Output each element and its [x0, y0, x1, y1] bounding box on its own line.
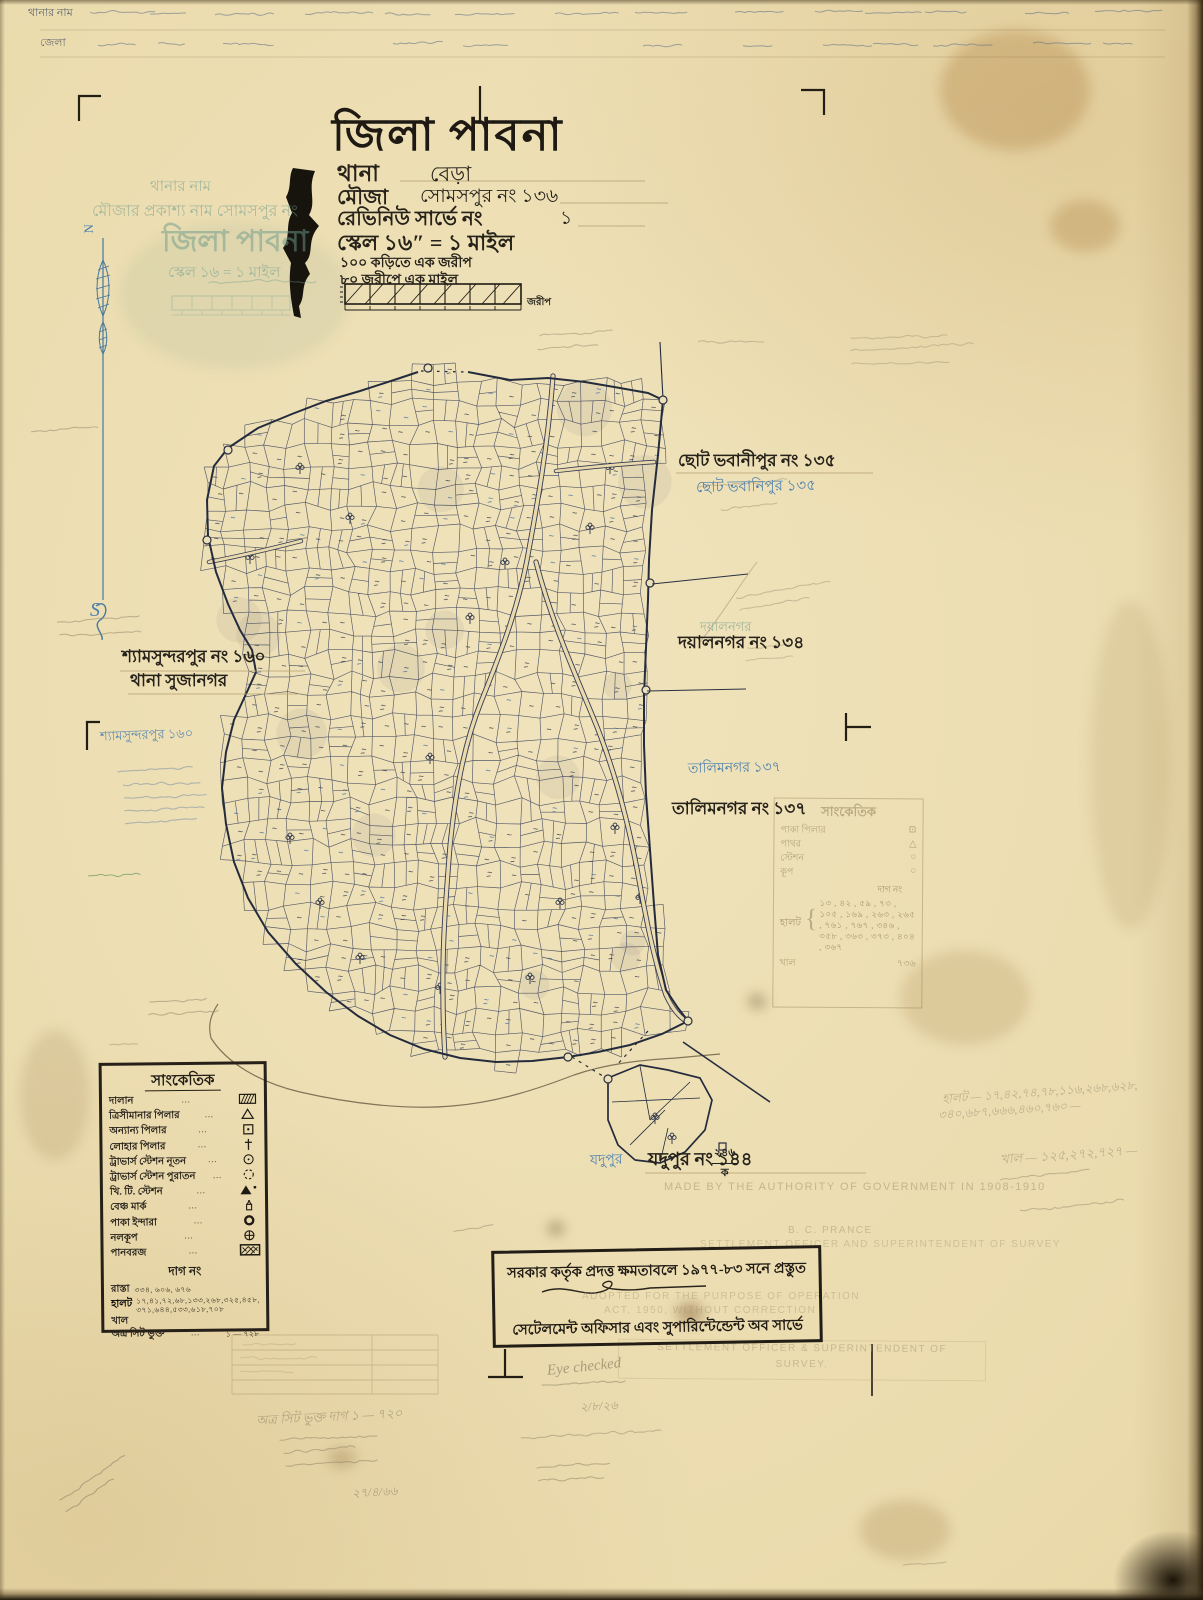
scribble-line [305, 12, 373, 15]
tree-symbol [668, 1133, 676, 1144]
scribble-line [149, 998, 207, 1004]
legend-row-traverse-old: ট্রাভার্স স্টেশন পুরাতন ··· [110, 1169, 258, 1186]
handwriting-scribble [903, 1562, 947, 1566]
detached-plot-number: ২৪৬ [712, 1144, 737, 1164]
tree-crown [298, 463, 302, 467]
scribble-line [823, 44, 872, 46]
scribble-line [521, 1429, 662, 1440]
scribble-line [743, 46, 772, 47]
stamp-line1: সরকার কর্তৃক প্রদত্ত ক্ষমতাবলে ১৯৭৭-৮৩ স… [494, 1257, 818, 1287]
cadastral-map-sheet: থানার নাম জেলা থানার নাম মৌজার প্রকাশ্য … [0, 0, 1203, 1600]
legend-dots: ··· [146, 1202, 239, 1213]
scribble-line [123, 781, 200, 787]
junction-circle [224, 446, 232, 454]
crop-mark-bottom [488, 1349, 523, 1377]
handwriting-scribble [850, 333, 974, 366]
scribble-line [453, 1225, 493, 1232]
scribble-line [555, 12, 619, 14]
tree-symbol [556, 898, 564, 909]
crop-mark-top-left [79, 96, 101, 121]
junction-circle [203, 536, 211, 544]
scribble-line [815, 10, 863, 12]
scribble-line [850, 342, 973, 350]
scribble-line [1020, 1199, 1125, 1212]
scribble-line [1025, 12, 1069, 14]
legend-label: পানবরজ [111, 1245, 147, 1262]
ghost-thana-line: থানার নাম [150, 180, 211, 196]
stamp-prance: B. C. PRANCE [788, 1226, 873, 1237]
junction-circle [684, 1017, 692, 1025]
revenue-survey-value: ১ [560, 209, 572, 229]
table-entry-scribble [635, 12, 687, 47]
scribble-line [240, 1371, 293, 1373]
compass-north-label: N [82, 224, 96, 233]
junction-circle [424, 364, 432, 372]
scribble-line [240, 1357, 317, 1360]
handwriting-scribble [58, 1455, 133, 1513]
tree-crown [318, 898, 322, 902]
legend-values: ১৭,৪১,৭২,৬৮,১৩৩,২৬৮,৩২৫,৪৫৮,৩৭১,৬৪৪,৫৩৩,… [136, 1295, 260, 1315]
ghost-legend-row: পাথর△ [780, 838, 916, 853]
scribble-line [223, 43, 273, 45]
top-table-cell: থানার নাম [28, 8, 73, 20]
scribble-line [215, 13, 274, 15]
legend-dots: ··· [195, 1172, 238, 1182]
label-thana-sujanagar: থানা সুজানগর [130, 672, 227, 690]
scalebar-ticks [345, 304, 521, 310]
scribble-line [635, 12, 687, 13]
tree-crown [613, 823, 617, 827]
ghost-legend-label: স্টেশন [780, 852, 804, 866]
legend-row-tri-pillar: ত্রিসীমানার পিলার ··· [109, 1108, 257, 1125]
junction-circle [604, 1075, 612, 1083]
stamp-made-by: MADE BY THE AUTHORITY OF GOVERNMENT IN 1… [664, 1182, 1046, 1194]
scalebar-left-marks [340, 287, 343, 302]
label-chhoto-bhabanipur: ছোট ভবানীপুর নং ১৩৫ [678, 452, 836, 470]
scribble-line [98, 43, 136, 46]
handwriting-scribble [736, 580, 833, 611]
crop-mark-top-right [801, 90, 824, 115]
ghost-legend-value: ৭৩৬ [897, 958, 916, 972]
scribble-line [933, 44, 993, 46]
ghost-legend-values: ১৩ , ৪২ , ৫৯ , ৭৩ , ১০৫ , ১৬৯ , ২৬৩ , ২৬… [819, 898, 916, 954]
legend-dots: ··· [166, 1142, 239, 1153]
scribble-line [124, 794, 207, 799]
tree-crown [358, 953, 362, 957]
legend-values: ৩৩৪, ৬০৬, ৬৭৬ [134, 1285, 191, 1295]
legend-dots: ··· [138, 1233, 240, 1244]
top-table-strip [40, 10, 1165, 57]
thana-value: বেড়া [430, 163, 471, 185]
ghost-legend-khal: খাল ৭৩৬ [780, 957, 916, 972]
mouza-value: সোমসপুর নং ১৩৬ [420, 187, 558, 207]
boundary-extension [660, 342, 663, 399]
legend-label: হালট [111, 1297, 132, 1314]
scribble-line [125, 818, 197, 824]
legend-dots: ··· [157, 1218, 239, 1229]
scribble-line [158, 43, 185, 45]
legend-dag-header: দাগ নং [111, 1262, 259, 1284]
crop-mark-right [846, 713, 871, 741]
handwriting-scribble [542, 1379, 626, 1387]
label-chhoto-bhabanipur-hand: ছোট ভবানিপুর ১৩৫ [696, 479, 816, 497]
label-talimnagar-hand: তালিমনগর ১৩৭ [688, 761, 781, 777]
stamp-settlement2-line2: SURVEY. [775, 1359, 828, 1370]
handwriting-scribble [536, 328, 614, 350]
legend-dots: ··· [186, 1157, 239, 1168]
scribble-line [851, 334, 948, 341]
tree-symbol [611, 823, 619, 834]
ghost-legend-row: পাকা পিলার⊡ [780, 824, 916, 839]
handwriting-scribble [147, 997, 218, 1017]
scribble-line [148, 1009, 218, 1017]
legend-row-benchmark: বেঞ্চ মার্ক ··· [110, 1200, 258, 1217]
legend-row-well: পাকা ইন্দারা ··· [110, 1215, 258, 1232]
legend-row-gt-station: খি. টি. স্টেশন ··· [110, 1184, 258, 1201]
scribble-line [865, 12, 921, 14]
scribble-line [455, 13, 515, 15]
north-arrow [96, 238, 110, 640]
junction-circle [646, 579, 654, 587]
handwriting-scribble [536, 1461, 611, 1483]
tree-crown [428, 753, 432, 757]
tree-crown [588, 523, 592, 527]
scribble-line [279, 1434, 377, 1442]
ghost-legend-label: কূপ [780, 866, 793, 880]
ghost-legend-label: পাথর [780, 838, 801, 852]
tree-symbol [426, 753, 434, 764]
table-entry-scribble [815, 10, 872, 46]
tree-crown [348, 513, 352, 517]
ghost-scale-line: স্কেল ১৬ = ১ মাইল [168, 266, 280, 282]
scribble-line [1000, 1169, 1090, 1180]
circle-icon: ○ [910, 866, 916, 880]
ghost-legend-halot: হালট { ১৩ , ৪২ , ৫৯ , ৭৩ , ১০৫ , ১৬৯ , ২… [780, 898, 916, 954]
scribble-line [721, 501, 778, 511]
triangle-icon: △ [909, 838, 916, 852]
scribble-line [735, 11, 784, 12]
scribble-line [537, 343, 598, 350]
scribble-line [31, 426, 98, 432]
scribble-line [88, 873, 140, 878]
table-entry-scribble [925, 11, 993, 46]
leader-line [652, 574, 748, 584]
legend-dots: ··· [164, 1329, 225, 1340]
scribble-line [851, 360, 949, 366]
table-rule [40, 30, 1165, 57]
ghost-legend-row: স্টেশন○ [780, 852, 916, 867]
road-fill [209, 541, 301, 562]
handwriting-scribble [698, 341, 764, 343]
top-table-cell: জেলা [40, 38, 66, 50]
ghost-legend-dag-header: দাগ নং [780, 882, 902, 898]
legend-dag-row-halot: হালট ১৭,৪১,৭২,৬৮,১৩৩,২৬৮,৩২৫,৪৫৮,৩৭১,৬৪৪… [111, 1295, 259, 1315]
tree-symbol [466, 613, 474, 624]
label-jadupur-hand: যদুপুর [590, 1153, 623, 1169]
scribble-line [536, 1461, 610, 1469]
scribble-line [393, 41, 443, 44]
handwriting-scribble [1020, 1199, 1125, 1212]
hamlet-patch [604, 672, 632, 700]
scribble-line [90, 11, 155, 14]
label-shyamsundarpur: শ্যামসুন্দরপুর নং ১৬০ [122, 648, 266, 666]
scale-sub-line1: ১০০ কড়িতে এক জরীপ [340, 257, 472, 272]
scale-line: স্কেল ১৬″ = ১ মাইল [337, 231, 514, 254]
handwriting-scribble [721, 501, 778, 511]
scribble-line [739, 597, 809, 611]
ghost-legend-row: কূপ○ [780, 866, 916, 881]
table-entry-scribble [305, 12, 373, 15]
scribble-line [109, 1044, 138, 1045]
thana-label: থানা [337, 162, 379, 186]
scribble-line [59, 1455, 125, 1502]
hamlet-patch [520, 970, 550, 1000]
handwriting-scribble [88, 873, 140, 878]
detached-plot-label: ২৪৬ ক [712, 1144, 737, 1183]
handwriting-scribble [521, 1429, 662, 1440]
note-sheet-date: ২৭/৪/৬৬ [352, 1485, 398, 1500]
scribble-line [124, 806, 204, 812]
district-title: জিলা পাবনা [332, 112, 564, 159]
table-entry-scribble [555, 12, 619, 14]
scribble-line [538, 1475, 604, 1482]
scale-sub-line2: ৮০ জরীপে এক মাইল [340, 274, 458, 289]
legend-row-tubewell: নলকূপ ··· [110, 1230, 258, 1247]
table-entry-scribble [1025, 12, 1091, 44]
handwriting-scribble [240, 1343, 317, 1372]
compass-south-label: S [90, 600, 100, 621]
legend-dots: ··· [133, 1096, 238, 1107]
ghost-legend-box: সাংকেতিক পাকা পিলার⊡ পাথর△ স্টেশন○ কূপ○ … [772, 797, 923, 1008]
label-talimnagar: তালিমনগর নং ১৩৭ [672, 800, 806, 818]
legend-dots: ··· [167, 1126, 239, 1137]
junction-circle [564, 1053, 572, 1061]
ghost-district-title: জিলা পাবনা [162, 226, 308, 258]
scribble-line [736, 580, 831, 599]
scribble-line [745, 655, 792, 662]
legend-dots: ··· [146, 1248, 239, 1259]
stamp-settlement2: SETTLEMENT OFFICER & SUPERINTENDENT OF S… [618, 1339, 986, 1382]
pan-hatch-icon [239, 1244, 258, 1262]
scribble-line [925, 11, 966, 13]
square-dot-icon: ⊡ [908, 824, 916, 838]
certification-stamp-box: সরকার কর্তৃক প্রদত্ত ক্ষমতাবলে ১৯৭৭-৮৩ স… [491, 1245, 823, 1348]
scribble-line [542, 1379, 626, 1387]
scribble-line [65, 1478, 114, 1513]
scribble-line [283, 1446, 355, 1454]
label-dayalnagar-stamp: দয়ালনগর [700, 620, 751, 634]
revenue-survey-label: রেভিনিউ সার্ভে নং [337, 209, 482, 230]
legend-values-line2: ৩৭১,৬৪৪,৫৩৩,৬১৮,৭০৮ [136, 1305, 224, 1315]
handwriting-scribble [453, 1225, 493, 1232]
scalebar-unit-label: জরীপ [527, 298, 551, 309]
scribble-line [903, 1562, 947, 1566]
scribble-line [463, 45, 508, 47]
legend-values-line1: ১৭,৪১,৭২,৬৮,১৩৩,২৬৮,৩২৫,৪৫৮, [136, 1295, 260, 1305]
scribble-line [117, 766, 192, 772]
scribble-line [1095, 10, 1162, 12]
legend-values: ১ — ৭২৮ [226, 1329, 260, 1339]
legend-label: অত্র সিট ভুক্ত [111, 1327, 164, 1345]
legend-dots: ··· [163, 1187, 239, 1198]
scribble-line [242, 1343, 296, 1345]
label-dayalnagar: দয়ালনগর নং ১৩৪ [678, 634, 804, 652]
junction-circle [659, 396, 667, 404]
table-entry-scribble [385, 13, 443, 44]
scribble-line [1033, 42, 1091, 44]
ghost-legend-label: খাল [780, 957, 796, 971]
legend-box: সাংকেতিক দালান ··· ত্রিসীমানার পিলার ···… [99, 1061, 270, 1333]
ghost-legend-label: পাকা পিলার [780, 824, 825, 838]
legend-dag-row-sheet: অত্র সিট ভুক্ত ··· ১ — ৭২৮ [111, 1327, 259, 1343]
ghost-grid-lines [232, 1335, 438, 1394]
leader-line [647, 689, 746, 691]
mouza-label: মৌজা [337, 186, 388, 208]
handwriting-scribble [279, 1434, 378, 1467]
crop-mark-left [87, 722, 100, 750]
scribble-line [698, 341, 764, 343]
tree-crown [468, 613, 472, 617]
scribble-line [385, 13, 431, 15]
tree-crown [670, 1133, 674, 1137]
scribble-line [873, 43, 918, 45]
handwriting-scribble [109, 1044, 138, 1045]
circle-icon: ○ [911, 852, 917, 866]
stamp-line2: সেটেলমেন্ট অফিসার এবং সুপারিন্টেন্ডেন্ট … [495, 1314, 819, 1344]
survey-ray [683, 1042, 770, 1102]
ghost-mouza-line: মৌজার প্রকাশ্য নাম সোমসপুর নং [92, 204, 298, 221]
ghost-table-grid [232, 1335, 438, 1394]
scribble-line [286, 1460, 378, 1467]
label-shyamsundarpur-hand: শ্যামসুন্দরপুর ১৬০ [100, 726, 194, 743]
tree-symbol [316, 898, 324, 909]
handwriting-scribble [1000, 1169, 1090, 1180]
legend-row-betel: পানবরজ ··· [111, 1245, 259, 1262]
table-entry-scribble [90, 11, 155, 46]
ghost-legend-label: হালট [780, 916, 801, 953]
scribble-line [643, 45, 682, 47]
ghost-scalebar-ticks [172, 296, 290, 315]
junction-circle [642, 686, 650, 694]
legend-title: সাংকেতিক [109, 1068, 257, 1095]
table-entry-scribble [1095, 10, 1162, 44]
tree-crown [288, 833, 292, 837]
legend-row-building: দালান ··· [109, 1093, 257, 1110]
handwriting-scribble [31, 426, 98, 432]
table-entry-scribble [150, 13, 186, 45]
brace-glyph: { [805, 904, 818, 953]
tree-symbol [501, 558, 509, 569]
table-entry-scribble [735, 11, 784, 46]
table-entry-scribble [865, 12, 921, 46]
legend-dots: ··· [180, 1111, 239, 1122]
tree-crown [503, 558, 507, 562]
scribble-line [150, 13, 186, 14]
legend-row-other-pillar: অন্যান্য পিলার ··· [109, 1124, 257, 1141]
scribble-line [539, 328, 613, 338]
handwriting-scribble [117, 766, 207, 824]
scribble-line [1103, 43, 1132, 44]
table-entry-scribble [215, 13, 274, 46]
legend-title-text: সাংকেতিক [145, 1073, 220, 1092]
note-checked-date: ২/৮/২৬ [580, 1399, 618, 1414]
ghost-scalebar [172, 296, 290, 315]
